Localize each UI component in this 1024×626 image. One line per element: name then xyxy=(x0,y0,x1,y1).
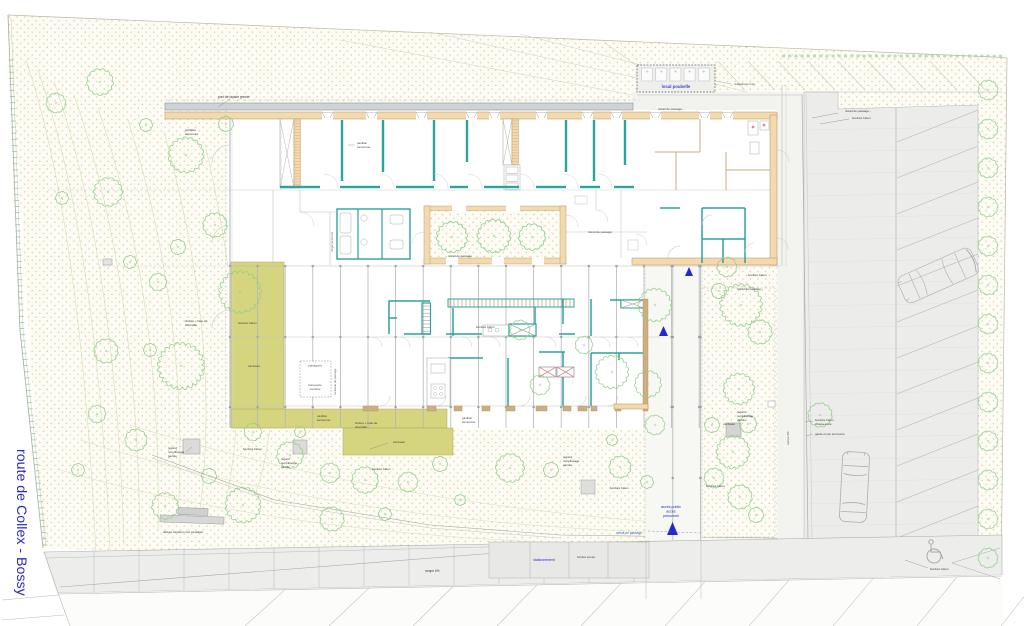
svg-text:bordure béton: bordure béton xyxy=(243,447,262,451)
svg-text:chasse-roue: chasse-roue xyxy=(815,422,832,426)
svg-text:asmuroire: asmuroire xyxy=(185,132,199,136)
svg-text:route de Collex - Bossy: route de Collex - Bossy xyxy=(13,449,29,597)
svg-text:rangements bas: rangements bas xyxy=(330,231,334,252)
svg-text:caniveau: caniveau xyxy=(248,364,260,368)
svg-text:carrelée: carrelée xyxy=(310,387,321,391)
svg-text:bordure béton: bordure béton xyxy=(748,273,767,277)
svg-text:bordure béton: bordure béton xyxy=(852,116,871,120)
svg-text:stationnement: stationnement xyxy=(533,558,554,562)
svg-text:semurone: semurone xyxy=(462,420,476,424)
svg-text:gazole: gazole xyxy=(281,465,290,469)
svg-text:caniveau de passage: caniveau de passage xyxy=(333,368,337,395)
svg-text:semurone: semurone xyxy=(317,418,331,422)
svg-text:local poubelle: local poubelle xyxy=(662,84,691,89)
svg-text:gazole: gazole xyxy=(563,463,572,467)
svg-text:rétrait de passage -: rétrait de passage - xyxy=(737,287,763,291)
svg-text:gazole: gazole xyxy=(737,418,746,422)
svg-text:bordure béton: bordure béton xyxy=(930,567,949,571)
svg-text:personnel: personnel xyxy=(663,514,679,518)
svg-text:gazole: gazole xyxy=(168,454,177,458)
svg-text:rétrait de passage -: rétrait de passage - xyxy=(658,107,684,111)
svg-text:débute sération cool canadien: débute sération cool canadien xyxy=(163,530,203,534)
svg-text:bordes povés: bordes povés xyxy=(577,555,596,559)
svg-text:semurone: semurone xyxy=(357,145,371,149)
svg-text:bordure béton: bordure béton xyxy=(238,321,257,325)
svg-text:bordure béton: bordure béton xyxy=(372,467,391,471)
svg-text:bordure béton: bordure béton xyxy=(706,484,725,488)
svg-text:réalisations bois: réalisations bois xyxy=(734,82,755,86)
svg-text:bordure béton: bordure béton xyxy=(610,486,629,490)
svg-text:rampe 6%: rampe 6% xyxy=(425,569,440,573)
svg-text:rampe 6%: rampe 6% xyxy=(786,431,790,445)
svg-text:charmille: charmille xyxy=(355,425,367,429)
svg-text:accès: accès xyxy=(666,510,676,514)
svg-text:caniveau: caniveau xyxy=(723,422,735,426)
svg-text:accès public: accès public xyxy=(661,505,681,509)
svg-text:pont de façade gravier: pont de façade gravier xyxy=(218,95,251,99)
svg-text:rétroit de passage: rétroit de passage xyxy=(448,254,472,258)
svg-text:bordure béton: bordure béton xyxy=(476,325,495,329)
svg-text:garde-corps serrurerie: garde-corps serrurerie xyxy=(815,432,845,436)
svg-text:caniveau: caniveau xyxy=(393,440,405,444)
svg-text:rétroit de passage: rétroit de passage xyxy=(588,230,612,234)
svg-text:retrait de passage -: retrait de passage - xyxy=(616,531,643,535)
svg-text:paisagons: paisagons xyxy=(308,364,322,368)
svg-text:rétrait de passage -: rétrait de passage - xyxy=(845,109,871,113)
svg-text:charmille: charmille xyxy=(185,323,197,327)
